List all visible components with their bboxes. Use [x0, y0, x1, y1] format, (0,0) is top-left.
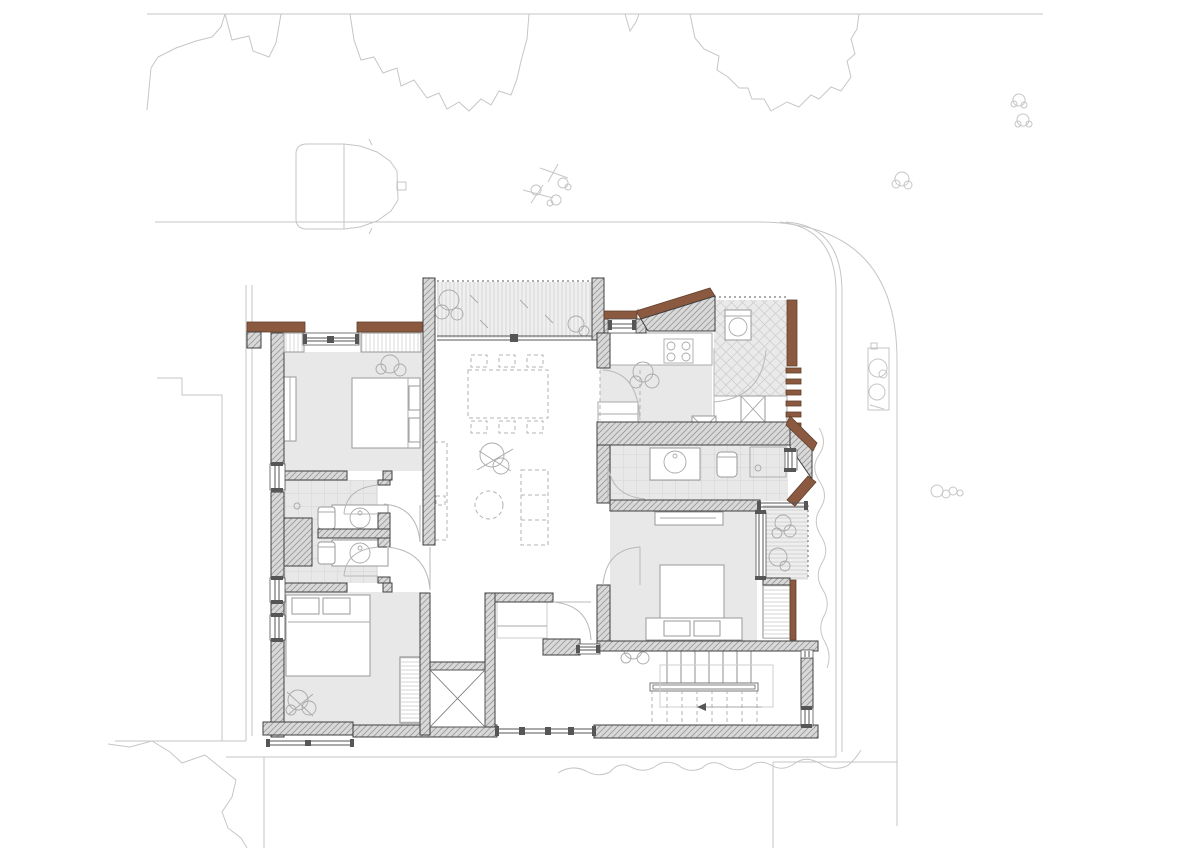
window-clip [757, 501, 761, 510]
bed-bedroom3-pillow [323, 598, 350, 614]
wall-terrace-pier-west [423, 278, 435, 545]
wall-west-bath-pier [284, 518, 312, 566]
car-body [296, 144, 398, 229]
window-clip [305, 740, 311, 746]
dining-chair [527, 355, 543, 367]
site-plant [1013, 94, 1025, 106]
wardrobe-bedroom3-shelves [400, 657, 421, 723]
window-clip [350, 739, 354, 747]
lounge-chair-sketch [477, 449, 513, 471]
planter-box [868, 348, 889, 410]
window-clip [355, 334, 359, 344]
console-sideboard [434, 442, 447, 540]
window-clip [804, 501, 808, 510]
survey-stake [540, 164, 568, 182]
window-kitchen-bg [608, 319, 636, 333]
wall-deck-south [763, 578, 790, 585]
bed-master-pillow [664, 621, 690, 636]
wood-kitchen-north [604, 311, 637, 319]
wall-band-middle [597, 422, 790, 445]
window-clip [755, 510, 766, 514]
window-west2-bg [270, 578, 285, 602]
window-clip [784, 448, 796, 452]
car-detail [397, 182, 406, 190]
wood-balcony-corner [787, 476, 816, 506]
wall-south-bedroom3 [263, 722, 353, 735]
wall-elevator-west [420, 593, 430, 735]
wall-masterbath-south [610, 500, 760, 511]
window-clip [596, 645, 600, 653]
window-clip [510, 334, 518, 342]
wood-ladder-rung [786, 379, 801, 384]
dresser-master [655, 512, 723, 525]
plot-step-line [157, 378, 222, 741]
window-clip [271, 576, 283, 580]
wood-north-band [357, 322, 423, 332]
tree-outline-topcenter [350, 14, 529, 111]
window-clip [568, 727, 574, 735]
window-clip [303, 334, 307, 344]
bed-bedroom1-pillow [409, 418, 420, 442]
wall-bath-south-b [383, 583, 392, 592]
floor-deck-stripes [763, 505, 808, 580]
bed-bedroom3-pillow [292, 598, 319, 614]
toilet-bath1 [318, 507, 335, 529]
site-plant [1017, 114, 1029, 126]
floor-plan-canvas [0, 0, 1200, 848]
window-clip [495, 726, 499, 736]
sofa-cushion-lines [521, 495, 548, 520]
site-plant [949, 487, 957, 495]
foyer-cabinet [497, 602, 547, 638]
toilet-master-bath [717, 452, 737, 477]
wood-ladder-rung [786, 368, 801, 373]
window-clip [327, 336, 334, 343]
window-staireast-high-bg [801, 650, 813, 658]
wall-foyer-stub [543, 639, 580, 655]
bed-bedroom1-pillow [409, 386, 420, 410]
window-clip [784, 468, 796, 472]
wood-utility-east [787, 300, 797, 366]
planter-line [870, 405, 884, 409]
window-staireast-low-bg [801, 708, 813, 726]
site-plant [895, 172, 909, 186]
floor-terrace-stripes [437, 282, 592, 338]
window-clip [632, 320, 636, 330]
wall-west-bedroom1 [271, 333, 284, 464]
window-masterbed-east-bg [756, 512, 766, 578]
wall-bath-divider [318, 529, 390, 538]
window-clip [271, 462, 283, 466]
wall-bath-east-a [378, 480, 390, 485]
stair-treads-upper [667, 650, 751, 685]
vegetation-right [815, 428, 829, 668]
door-bedroom3-arc [387, 547, 430, 590]
wood-deck-south [790, 580, 796, 640]
lounge-chair-sketch [480, 443, 504, 467]
window-clip [271, 488, 283, 492]
toilet-bath2 [318, 542, 335, 564]
console-detail [436, 496, 445, 505]
window-clip [271, 638, 283, 642]
wall-stairhall-north [597, 641, 818, 651]
shutter-band [361, 333, 421, 352]
window-clip [545, 727, 551, 735]
tree-outline-topleft [147, 14, 281, 110]
pouf [475, 491, 503, 519]
tree-outline-topnotch [625, 14, 639, 31]
wood-porch-band [247, 322, 305, 332]
window-clip [271, 613, 283, 617]
dining-chair [471, 421, 487, 433]
door-entry-arc [553, 602, 591, 640]
car-mirror [369, 139, 372, 234]
window-west3-bg [270, 615, 285, 640]
sofa [521, 470, 548, 545]
wall-terrace-pier-east [592, 278, 604, 340]
site-plant [957, 490, 963, 496]
lounge-chair-sketch [493, 458, 509, 474]
dining-chair [471, 355, 487, 367]
wall-masterwing-lower [597, 585, 610, 643]
window-west1-bg [270, 464, 285, 490]
shutter-band [284, 333, 304, 352]
stair-handrail [650, 683, 758, 691]
tree-outline-topright [690, 14, 859, 111]
dining-chair [499, 421, 515, 433]
stair-direction-arrow [697, 703, 706, 711]
window-eastbath-bg [785, 450, 797, 470]
window-clip [801, 724, 812, 728]
wood-ladder-rung [786, 401, 801, 406]
wood-ladder-rung [786, 390, 801, 395]
site-plant [931, 485, 943, 497]
wall-south-stairhall [594, 725, 818, 738]
planter-plant [869, 359, 887, 377]
planter-plant [869, 384, 885, 400]
wood-ladder-rung [786, 412, 801, 417]
window-clip [608, 320, 612, 330]
wall-porch-corner [247, 332, 261, 348]
vanity-master-bath [650, 448, 700, 480]
window-clip [519, 727, 525, 735]
floor-plan-page [0, 0, 1200, 848]
window-clip [755, 576, 766, 580]
planter-plant [879, 370, 887, 378]
wall-foyer-north [495, 593, 553, 602]
wall-foyer-west [485, 593, 495, 727]
window-clip [801, 706, 812, 710]
dining-table [468, 370, 548, 418]
louver-screen-stripes [763, 585, 790, 638]
window-clip [576, 645, 580, 653]
stair-plant [637, 652, 649, 664]
wall-stair-pier-east [801, 658, 813, 708]
window-clip [592, 726, 596, 736]
dining-chair [499, 355, 515, 367]
site-plant [558, 178, 568, 188]
wall-west-bedroom3 [271, 591, 284, 737]
wall-masterwing-upper [597, 333, 610, 368]
window-clip [271, 600, 283, 604]
wall-bath-north-b [383, 471, 392, 480]
wall-elevator-top [430, 662, 485, 670]
window-clip [266, 739, 270, 747]
site-plant [892, 180, 900, 188]
kitchen-counter-north [604, 333, 712, 365]
dining-chair [527, 421, 543, 433]
wall-bath-east-c [378, 577, 390, 583]
bed-master-pillow [694, 621, 720, 636]
